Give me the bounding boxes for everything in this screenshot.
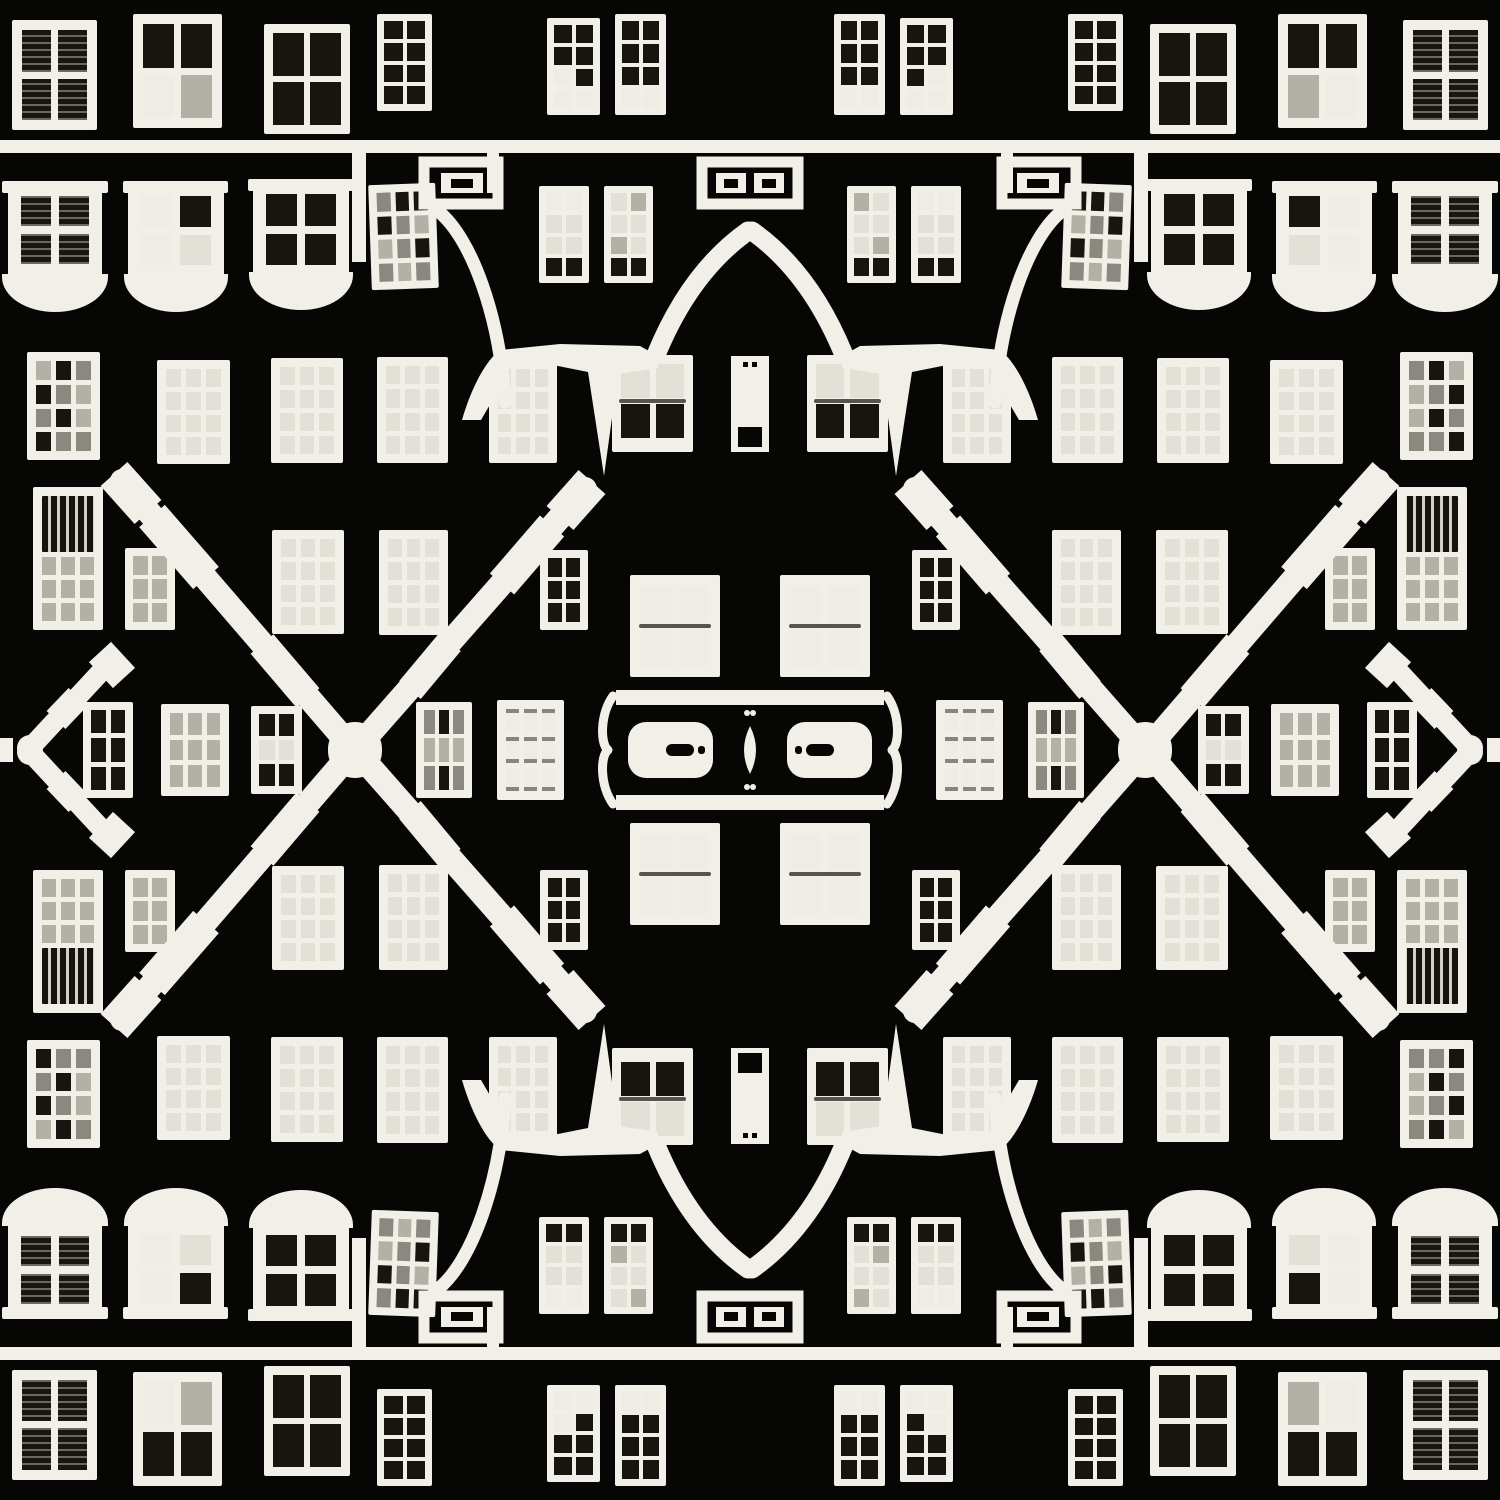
- window-pane: [1098, 874, 1112, 892]
- window-pane: [310, 1424, 341, 1467]
- window-pane: [938, 1289, 954, 1307]
- window-d5: [540, 870, 588, 950]
- window-pane: [1444, 902, 1458, 920]
- center-finial-dot: [750, 784, 756, 790]
- window-pane: [938, 558, 952, 577]
- window-pane: [206, 415, 221, 433]
- ledge-post-2: [1001, 140, 1013, 193]
- window-pane: [1166, 1092, 1181, 1110]
- window-pane: [622, 1392, 639, 1411]
- window-pane: [506, 709, 519, 732]
- window-pane: [1080, 585, 1094, 603]
- window-pane: [206, 1045, 221, 1063]
- window-pane: [862, 1392, 879, 1411]
- window-pane: [56, 361, 71, 380]
- window-pane: [1204, 539, 1219, 557]
- window-pane: [1449, 432, 1464, 451]
- center-meander-hole: [762, 1312, 776, 1321]
- window-pane: [918, 1289, 934, 1307]
- window-pane: [1061, 585, 1075, 603]
- window-pane: [989, 1046, 1002, 1064]
- window-panes: [386, 366, 439, 454]
- window-pane: [301, 585, 316, 603]
- window-pane: [425, 1093, 439, 1111]
- window-pane: [1425, 925, 1439, 943]
- window-pane: [554, 1414, 572, 1432]
- window-pane: [1072, 1290, 1086, 1309]
- window-pane: [181, 1433, 212, 1477]
- window-pane: [377, 1265, 391, 1284]
- window-pane: [1205, 1069, 1220, 1087]
- window-pane: [566, 237, 582, 255]
- window-pane: [1089, 1242, 1103, 1261]
- window-pane: [425, 1116, 439, 1134]
- window-pane: [280, 1115, 295, 1133]
- window-panes: [1206, 750, 1241, 786]
- window-pane: [1429, 432, 1444, 451]
- window-pane: [384, 1440, 403, 1458]
- window-pane: [1279, 437, 1294, 455]
- window-pane: [1098, 86, 1117, 104]
- window-pane: [1279, 392, 1294, 410]
- window-pane: [188, 750, 201, 760]
- window-pane: [631, 237, 647, 255]
- window-e3: [251, 750, 302, 794]
- window-pane: [1098, 21, 1117, 39]
- window-pane: [407, 562, 421, 580]
- window-center-sash: [630, 575, 720, 677]
- window-pane: [1065, 710, 1076, 734]
- bay-sill-bowl: [124, 1188, 228, 1226]
- window-pane: [929, 1457, 947, 1475]
- meander-ornament-inner: [441, 1307, 483, 1327]
- window-pane: [300, 1092, 315, 1110]
- beam-left-foot: [114, 474, 148, 512]
- window-b5: [911, 186, 961, 283]
- window-pane: [554, 1436, 572, 1454]
- window-pane: [1411, 234, 1441, 264]
- window-pane: [42, 603, 56, 621]
- window-pane: [1164, 1235, 1195, 1267]
- window-pane: [1298, 713, 1311, 735]
- window-pane: [907, 25, 925, 43]
- window-pane: [1108, 1242, 1122, 1261]
- window-pane: [929, 1392, 947, 1410]
- window-pane: [643, 1392, 660, 1411]
- window-pane: [376, 192, 390, 211]
- window-pane: [989, 1069, 1002, 1087]
- window-pane: [622, 67, 639, 86]
- window-panes: [143, 24, 212, 118]
- window-pane: [1352, 603, 1367, 622]
- window-pane: [929, 1436, 947, 1454]
- window-panes: [1413, 1380, 1478, 1470]
- window-pane: [874, 1289, 890, 1307]
- window-panes: [1165, 539, 1219, 625]
- window-pane: [918, 237, 934, 255]
- center-meander-outer: [702, 1296, 750, 1338]
- window-pane: [407, 21, 426, 39]
- window-pane: [424, 766, 435, 790]
- window-pane: [1080, 943, 1094, 961]
- window-pane: [405, 1046, 419, 1064]
- window-pane: [1080, 539, 1094, 557]
- window-a2: [1278, 1372, 1367, 1486]
- window-e2: [1271, 750, 1339, 796]
- window-e2: [161, 704, 229, 750]
- window-pane: [1166, 390, 1181, 408]
- window-pane: [1107, 1218, 1121, 1237]
- window-pane: [279, 764, 295, 786]
- window-pane: [1185, 898, 1200, 916]
- window-pane: [1425, 879, 1439, 897]
- window-pane: [407, 1461, 426, 1479]
- window-pane: [1288, 75, 1319, 119]
- window-panes: [1061, 874, 1112, 961]
- window-pane: [1185, 943, 1200, 961]
- window-panes: [1159, 1375, 1227, 1467]
- window-pane: [1165, 562, 1180, 580]
- window-pane: [1299, 369, 1314, 387]
- window-pane: [981, 709, 994, 732]
- window-pane: [207, 740, 220, 750]
- window-pane: [548, 581, 562, 600]
- window-a4: [377, 14, 432, 111]
- window-pane: [945, 768, 958, 791]
- window-pane: [453, 750, 464, 762]
- window-pane: [1352, 878, 1367, 897]
- window-d3: [272, 530, 344, 634]
- window-pane: [407, 1396, 426, 1414]
- window-panes: [1409, 361, 1464, 451]
- window-pane: [981, 768, 994, 791]
- window-b6: [604, 186, 653, 283]
- plaque-handle-dot: [795, 750, 802, 754]
- window-a3: [264, 1366, 350, 1476]
- window-pane: [386, 1046, 400, 1064]
- window-pane: [301, 607, 316, 625]
- center-meander-outer: [750, 162, 798, 204]
- window-pane: [1279, 369, 1294, 387]
- window-pane: [566, 1246, 582, 1264]
- window-pane: [874, 1224, 890, 1242]
- window-panes: [506, 709, 555, 750]
- window-pane: [405, 436, 419, 454]
- center-meander-hole: [724, 179, 738, 188]
- window-panes: [918, 1224, 954, 1307]
- window-pane: [397, 239, 411, 258]
- window-e4: [1028, 750, 1084, 798]
- edge-bracket-foot: [1376, 652, 1400, 678]
- window-pane: [1186, 367, 1201, 385]
- window-panes: [907, 1392, 946, 1475]
- window-pane: [1352, 579, 1367, 598]
- window-pane: [405, 1116, 419, 1134]
- window-pane: [1395, 710, 1410, 733]
- facade-quadrant-scene: [0, 0, 750, 750]
- beam-left-foot: [1352, 988, 1386, 1026]
- window-panes: [1164, 194, 1234, 265]
- window-pane: [1413, 30, 1442, 72]
- window-pane: [1036, 710, 1047, 734]
- window-d4: [1052, 530, 1121, 635]
- meander-ornament-hole: [1027, 179, 1049, 188]
- window-pane: [535, 1091, 548, 1109]
- window-pane: [22, 79, 51, 121]
- window-pane: [170, 713, 183, 735]
- ledge-post: [1134, 146, 1148, 262]
- window-pane: [301, 943, 316, 961]
- center-meander-inner: [716, 173, 746, 193]
- window-pane: [554, 25, 572, 43]
- window-b2: [1276, 1222, 1372, 1317]
- window-pane: [61, 879, 75, 897]
- window-pane: [1061, 943, 1075, 961]
- window-pane: [862, 1460, 879, 1479]
- window-pane: [535, 1046, 548, 1064]
- window-pane: [1328, 1235, 1359, 1266]
- window-c2: [157, 360, 230, 464]
- window-pane: [439, 750, 450, 762]
- window-pane: [874, 193, 890, 211]
- window-pane: [143, 1433, 174, 1477]
- window-pane: [42, 925, 56, 943]
- window-pane: [854, 258, 870, 276]
- window-pane: [439, 710, 450, 734]
- window-pane: [384, 1461, 403, 1479]
- window-panes: [166, 369, 221, 455]
- plaque-bracket: [603, 696, 613, 750]
- window-panes: [611, 1224, 646, 1307]
- window-pane: [1395, 750, 1410, 762]
- window-pane: [576, 69, 594, 87]
- window-pane: [1108, 216, 1122, 235]
- window-pane: [1036, 750, 1047, 762]
- facade-quadrant-scene: [750, 750, 1500, 1500]
- window-pane: [415, 1243, 429, 1262]
- window-pane: [643, 89, 660, 108]
- window-pane: [1409, 361, 1424, 380]
- window-pane: [186, 1068, 201, 1086]
- window-b2: [128, 183, 224, 278]
- window-pane: [498, 414, 511, 432]
- window-panes: [1165, 875, 1219, 961]
- window-pane: [854, 1268, 870, 1286]
- window-panes: [918, 193, 954, 276]
- window-c3: [271, 1037, 343, 1142]
- window-pane: [1100, 413, 1114, 431]
- bay-sill-bowl: [2, 274, 108, 312]
- window-pane: [920, 901, 934, 920]
- window-panes: [1036, 710, 1076, 750]
- window-pane: [76, 361, 91, 380]
- window-pane: [1409, 409, 1424, 428]
- window-c4: [1052, 357, 1123, 463]
- window-pane: [854, 1246, 870, 1264]
- window-panes: [1413, 30, 1478, 120]
- window-pane: [1051, 750, 1062, 762]
- window-pane: [56, 1073, 71, 1092]
- window-pane: [398, 1219, 412, 1238]
- window-pane: [851, 1062, 880, 1096]
- window-pane: [206, 392, 221, 410]
- window-pane: [425, 920, 439, 938]
- window-pane: [416, 1219, 430, 1238]
- window-panes: [1409, 1049, 1464, 1139]
- beam-right-molding-2: [410, 642, 450, 690]
- window-pane: [576, 1392, 594, 1410]
- window-pane: [1165, 875, 1180, 893]
- window-pane: [36, 1049, 51, 1068]
- window-pane: [1098, 65, 1117, 83]
- mirror-quadrant-q2: [0, 750, 750, 1500]
- window-pane: [1299, 1068, 1314, 1086]
- center-meander-inner: [754, 1307, 784, 1327]
- window-pane: [21, 234, 51, 264]
- window-pane: [396, 215, 410, 234]
- window-pane: [319, 436, 334, 454]
- window-pane: [36, 1120, 51, 1139]
- window-pane: [166, 415, 181, 433]
- window-pane: [266, 1275, 297, 1307]
- window-pane: [1280, 740, 1293, 750]
- window-pane: [1205, 436, 1220, 454]
- window-pane: [166, 392, 181, 410]
- window-pane: [1326, 75, 1357, 119]
- window-panes: [22, 1380, 87, 1470]
- window-pane: [1075, 86, 1094, 104]
- window-panes: [1159, 33, 1227, 125]
- window-panes: [91, 750, 125, 790]
- window-pane: [611, 237, 627, 255]
- window-a2: [1278, 14, 1367, 128]
- window-pane: [1061, 1116, 1075, 1134]
- window-pane: [1205, 1092, 1220, 1110]
- window-pane: [1036, 766, 1047, 790]
- window-pane: [425, 874, 439, 892]
- window-pane: [1429, 361, 1444, 380]
- window-pane: [396, 1266, 410, 1285]
- window-pane: [384, 86, 403, 104]
- window-pane: [641, 834, 672, 871]
- window-pane: [59, 196, 89, 226]
- window-pane: [1159, 82, 1190, 125]
- window-d2: [1325, 548, 1375, 630]
- window-pane: [1409, 1049, 1424, 1068]
- window-center-sash: [780, 575, 870, 677]
- window-pane: [425, 943, 439, 961]
- window-b4: [1061, 183, 1132, 290]
- window-pane: [141, 196, 172, 227]
- window-pane: [1070, 1243, 1084, 1262]
- window-a2: [133, 1372, 222, 1486]
- window-pane: [320, 607, 335, 625]
- window-pane: [841, 67, 858, 86]
- window-pane: [1288, 1433, 1319, 1477]
- window-panes: [266, 194, 336, 265]
- window-pane: [1289, 1274, 1320, 1305]
- window-panes: [424, 750, 464, 790]
- window-pane: [1080, 413, 1094, 431]
- window-pane: [546, 1246, 562, 1264]
- edge-bracket-tip: [1457, 750, 1483, 765]
- window-pane: [319, 367, 334, 385]
- window-c1: [27, 1040, 100, 1148]
- window-pane: [621, 1102, 650, 1136]
- center-meander-inner: [754, 173, 784, 193]
- window-pane: [641, 586, 672, 623]
- plaque-top-bar: [616, 795, 750, 810]
- window-pane: [1333, 556, 1348, 575]
- window-pane: [679, 586, 710, 623]
- window-pane: [266, 194, 297, 226]
- window-pane: [1080, 920, 1094, 938]
- window-center-sash: [780, 823, 870, 925]
- plaque-panel: [628, 750, 713, 778]
- window-e4: [416, 750, 472, 798]
- window-pane: [1159, 33, 1190, 76]
- window-pane: [1449, 196, 1479, 226]
- sash-rail: [639, 624, 711, 628]
- window-pane: [816, 1062, 845, 1096]
- window-pane: [141, 1235, 172, 1266]
- window-pane: [1444, 603, 1458, 621]
- gothic-arch: [752, 231, 844, 355]
- window-pane: [301, 875, 316, 893]
- window-c6: [807, 355, 888, 452]
- window-pane: [320, 943, 335, 961]
- window-panes: [854, 193, 889, 276]
- window-pane: [542, 750, 555, 763]
- ledge: [0, 140, 750, 153]
- window-pane: [1425, 603, 1439, 621]
- window-pane: [1061, 413, 1075, 431]
- window-pane: [576, 1414, 594, 1432]
- window-pane: [166, 1045, 181, 1063]
- window-pane: [386, 366, 400, 384]
- window-pane: [938, 258, 954, 276]
- window-pane: [1098, 920, 1112, 938]
- window-c6: [807, 1048, 888, 1145]
- window-pane: [1298, 740, 1311, 750]
- window-pane: [1109, 192, 1123, 211]
- window-pane: [424, 738, 435, 750]
- window-d2: [1325, 870, 1375, 952]
- window-pane: [963, 709, 976, 732]
- window-panes: [841, 1392, 878, 1479]
- window-pane: [1444, 925, 1458, 943]
- window-panes: [1075, 1396, 1116, 1479]
- window-pane: [133, 925, 148, 944]
- window-b1: [8, 183, 102, 277]
- window-panes: [388, 539, 439, 626]
- window-pane: [535, 1114, 548, 1132]
- window-pane: [36, 409, 51, 428]
- window-a3: [264, 24, 350, 134]
- window-pane: [259, 764, 275, 786]
- edge-stub: [0, 738, 13, 750]
- window-pane: [133, 603, 148, 622]
- window-pane: [170, 740, 183, 750]
- window-panes: [554, 25, 593, 108]
- meander-ornament-inner: [1017, 1307, 1059, 1327]
- window-pane: [1080, 897, 1094, 915]
- window-pane: [542, 709, 555, 732]
- window-pane: [1061, 608, 1075, 626]
- window-panes: [498, 369, 548, 454]
- window-pane: [631, 1224, 647, 1242]
- window-pane: [425, 413, 439, 431]
